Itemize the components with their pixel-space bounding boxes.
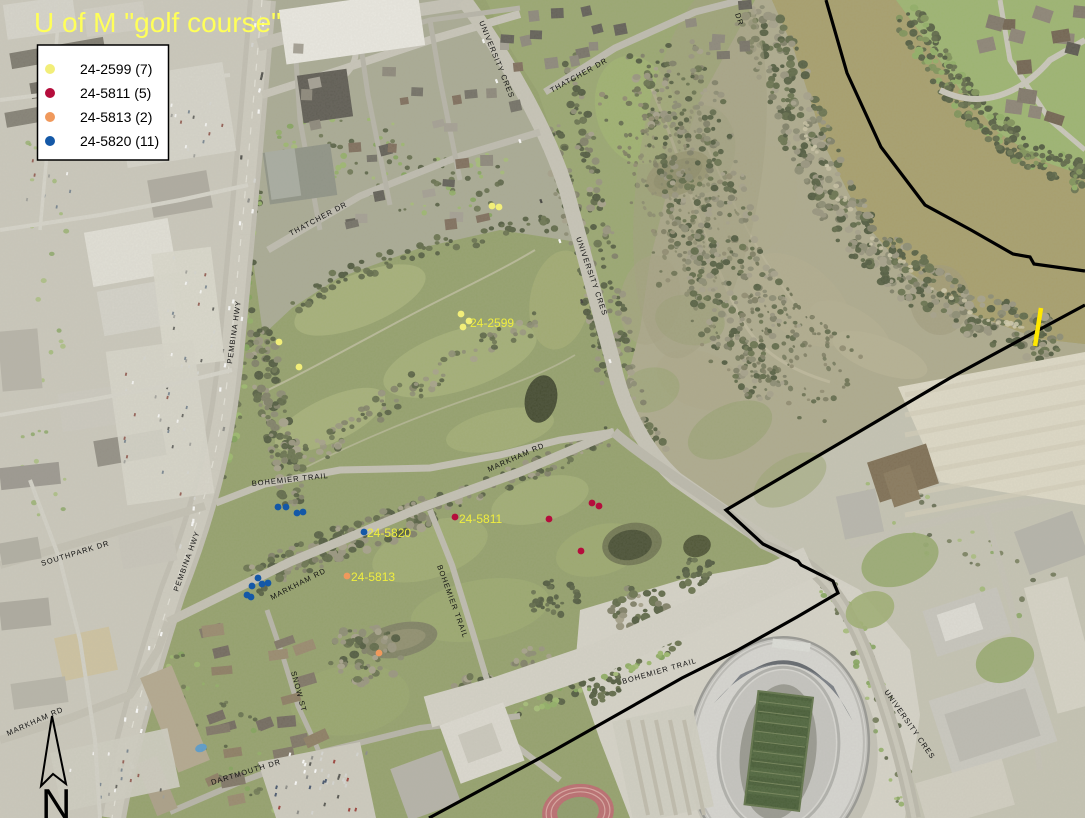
svg-text:24-5820: 24-5820 [367, 526, 411, 540]
svg-text:24-5813: 24-5813 [351, 570, 395, 584]
svg-text:N: N [41, 780, 71, 818]
svg-text:24-2599: 24-2599 [470, 316, 514, 330]
svg-text:24-5820 (11): 24-5820 (11) [80, 133, 159, 149]
svg-text:24-5811: 24-5811 [459, 512, 502, 526]
svg-text:24-5813 (2): 24-5813 (2) [80, 109, 152, 125]
svg-text:U of M "golf course": U of M "golf course" [34, 7, 281, 38]
svg-text:24-2599 (7): 24-2599 (7) [80, 61, 152, 77]
svg-text:24-5811 (5): 24-5811 (5) [80, 85, 151, 101]
